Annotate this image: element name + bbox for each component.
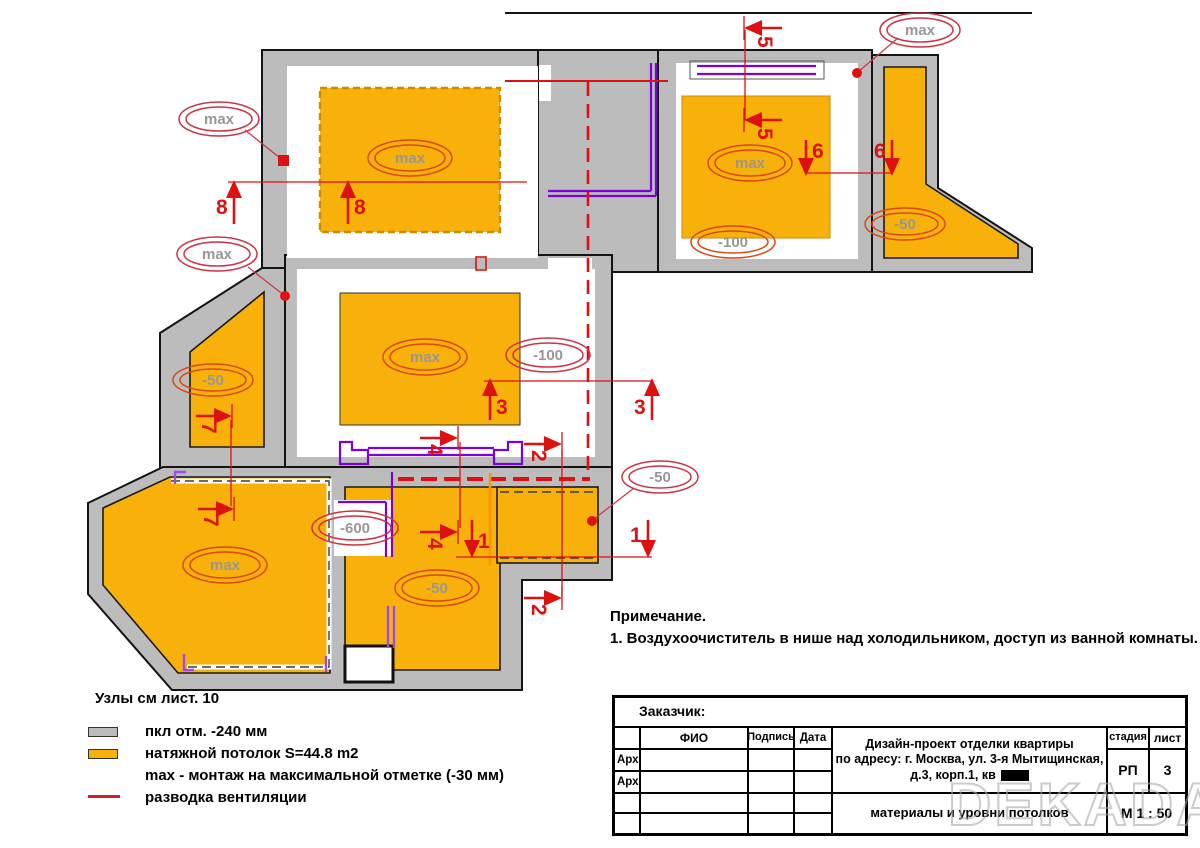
- level-label-text: -600: [340, 520, 370, 537]
- tb-empty: [794, 813, 832, 834]
- leader-target-square: [278, 155, 289, 166]
- level-label-text: max: [204, 111, 235, 128]
- level-label-text: max: [410, 349, 441, 366]
- section-digit: 2: [527, 450, 550, 462]
- leader-target-dot1: [280, 291, 290, 301]
- wall-block-hall: [538, 50, 668, 272]
- section-digit: 8: [216, 196, 228, 219]
- level-label-text: -50: [649, 469, 671, 486]
- leader-target-dot3: [587, 516, 597, 526]
- section-digit: 1: [478, 530, 490, 553]
- level-label-text: -100: [533, 347, 563, 364]
- redacted-apartment-number: [1001, 770, 1029, 781]
- tb-row-arch2: Арх.: [614, 771, 640, 793]
- legend-nodes-note: Узлы см лист. 10: [95, 690, 219, 707]
- section-digit: 8: [354, 196, 366, 219]
- tb-empty: [748, 793, 794, 813]
- legend-item-stretch: натяжной потолок S=44.8 m2: [145, 745, 359, 762]
- tb-empty: [748, 771, 794, 793]
- tb-stage-value: РП: [1107, 749, 1149, 793]
- section-digit: 3: [634, 396, 646, 419]
- section-mark-1-right: 1: [630, 520, 656, 558]
- tb-scale: М 1 : 50: [1107, 793, 1186, 834]
- section-mark-8-out: 8: [216, 180, 242, 224]
- section-digit: 3: [496, 396, 508, 419]
- leader-target-dot2: [852, 68, 862, 78]
- section-digit: 6: [874, 140, 886, 163]
- tb-empty: [640, 749, 748, 771]
- level-label-text: -50: [426, 580, 448, 597]
- door-gap-topleft-hall: [539, 65, 551, 101]
- level-label-text: max: [202, 246, 233, 263]
- tb-sheet-label: лист: [1149, 727, 1186, 749]
- level-label-callout: max: [880, 13, 960, 47]
- tb-empty: [640, 771, 748, 793]
- tb-col-podpis: Подпись: [748, 727, 794, 749]
- legend-item-vent: разводка вентиляции: [145, 789, 307, 806]
- title-block-customer: Заказчик:: [614, 697, 1186, 727]
- tb-empty: [748, 749, 794, 771]
- tb-project-line2: по адресу: г. Москва, ул. 3-я Мытищинска…: [836, 752, 1104, 768]
- section-digit: 5: [753, 36, 776, 48]
- tb-stage-label: стадия: [1107, 727, 1149, 749]
- legend-swatch-stretch-ceiling: [88, 749, 118, 759]
- tb-row-arch1: Арх.: [614, 749, 640, 771]
- ceiling-plan-sheet: 8 8 5 5 6 6: [0, 0, 1200, 848]
- note-line1: 1. Воздухоочиститель в нише над холодиль…: [610, 630, 1198, 647]
- tb-empty: [794, 793, 832, 813]
- section-digit: 7: [197, 422, 220, 434]
- section-digit: 4: [423, 444, 446, 456]
- section-digit: 4: [423, 538, 446, 550]
- section-mark-2-low: 2: [524, 586, 562, 616]
- section-mark-5-top: 5: [744, 16, 782, 48]
- tb-col-data: Дата: [794, 727, 832, 749]
- level-label-text: max: [905, 22, 936, 39]
- ceiling-corridor-band: [497, 487, 598, 563]
- section-digit: 1: [630, 524, 642, 547]
- door-gap-hall-middle: [548, 258, 592, 271]
- tb-doc-title: материалы и уровни потолков: [832, 793, 1107, 834]
- tb-empty: [614, 793, 640, 813]
- section-digit: 2: [527, 604, 550, 616]
- level-label-text: -50: [894, 216, 916, 233]
- tb-sheet-value: 3: [1149, 749, 1186, 793]
- note-title: Примечание.: [610, 608, 706, 625]
- tb-project-title: Дизайн-проект отделки квартиры по адресу…: [832, 727, 1107, 793]
- tb-col-fio: ФИО: [640, 727, 748, 749]
- tb-project-line3: д.3, корп.1, кв: [910, 768, 996, 784]
- tb-empty: [794, 771, 832, 793]
- tb-blank-header: [614, 727, 640, 749]
- tb-empty: [614, 813, 640, 834]
- tb-empty: [640, 813, 748, 834]
- level-label-text: max: [210, 557, 241, 574]
- legend-swatch-vent-line: [88, 795, 120, 798]
- section-digit: 7: [199, 515, 222, 527]
- section-digit: 6: [812, 140, 824, 163]
- level-label-callout: -50: [622, 461, 698, 493]
- tb-empty: [748, 813, 794, 834]
- section-digit: 5: [753, 128, 776, 140]
- legend-item-pkl: пкл отм. -240 мм: [145, 723, 267, 740]
- legend-item-max: max - монтаж на максимальной отметке (-3…: [145, 767, 504, 784]
- shaft-niche: [345, 646, 393, 682]
- level-label-text: -50: [202, 372, 224, 389]
- level-label-callout: max: [179, 102, 259, 136]
- title-block: Заказчик: ФИО Подпись Дата Арх. Арх. Диз…: [612, 695, 1188, 836]
- legend-swatch-gray-ceiling: [88, 727, 118, 737]
- level-label-text: max: [395, 150, 426, 167]
- tb-empty: [794, 749, 832, 771]
- level-label-text: -100: [718, 234, 748, 251]
- tb-empty: [640, 793, 748, 813]
- level-label-text: max: [735, 155, 766, 172]
- section-mark-3-out: 3: [634, 378, 660, 420]
- tb-project-line1: Дизайн-проект отделки квартиры: [865, 737, 1073, 753]
- tb-project-line3-wrap: д.3, корп.1, кв: [910, 768, 1029, 784]
- level-label-callout: max: [177, 237, 257, 271]
